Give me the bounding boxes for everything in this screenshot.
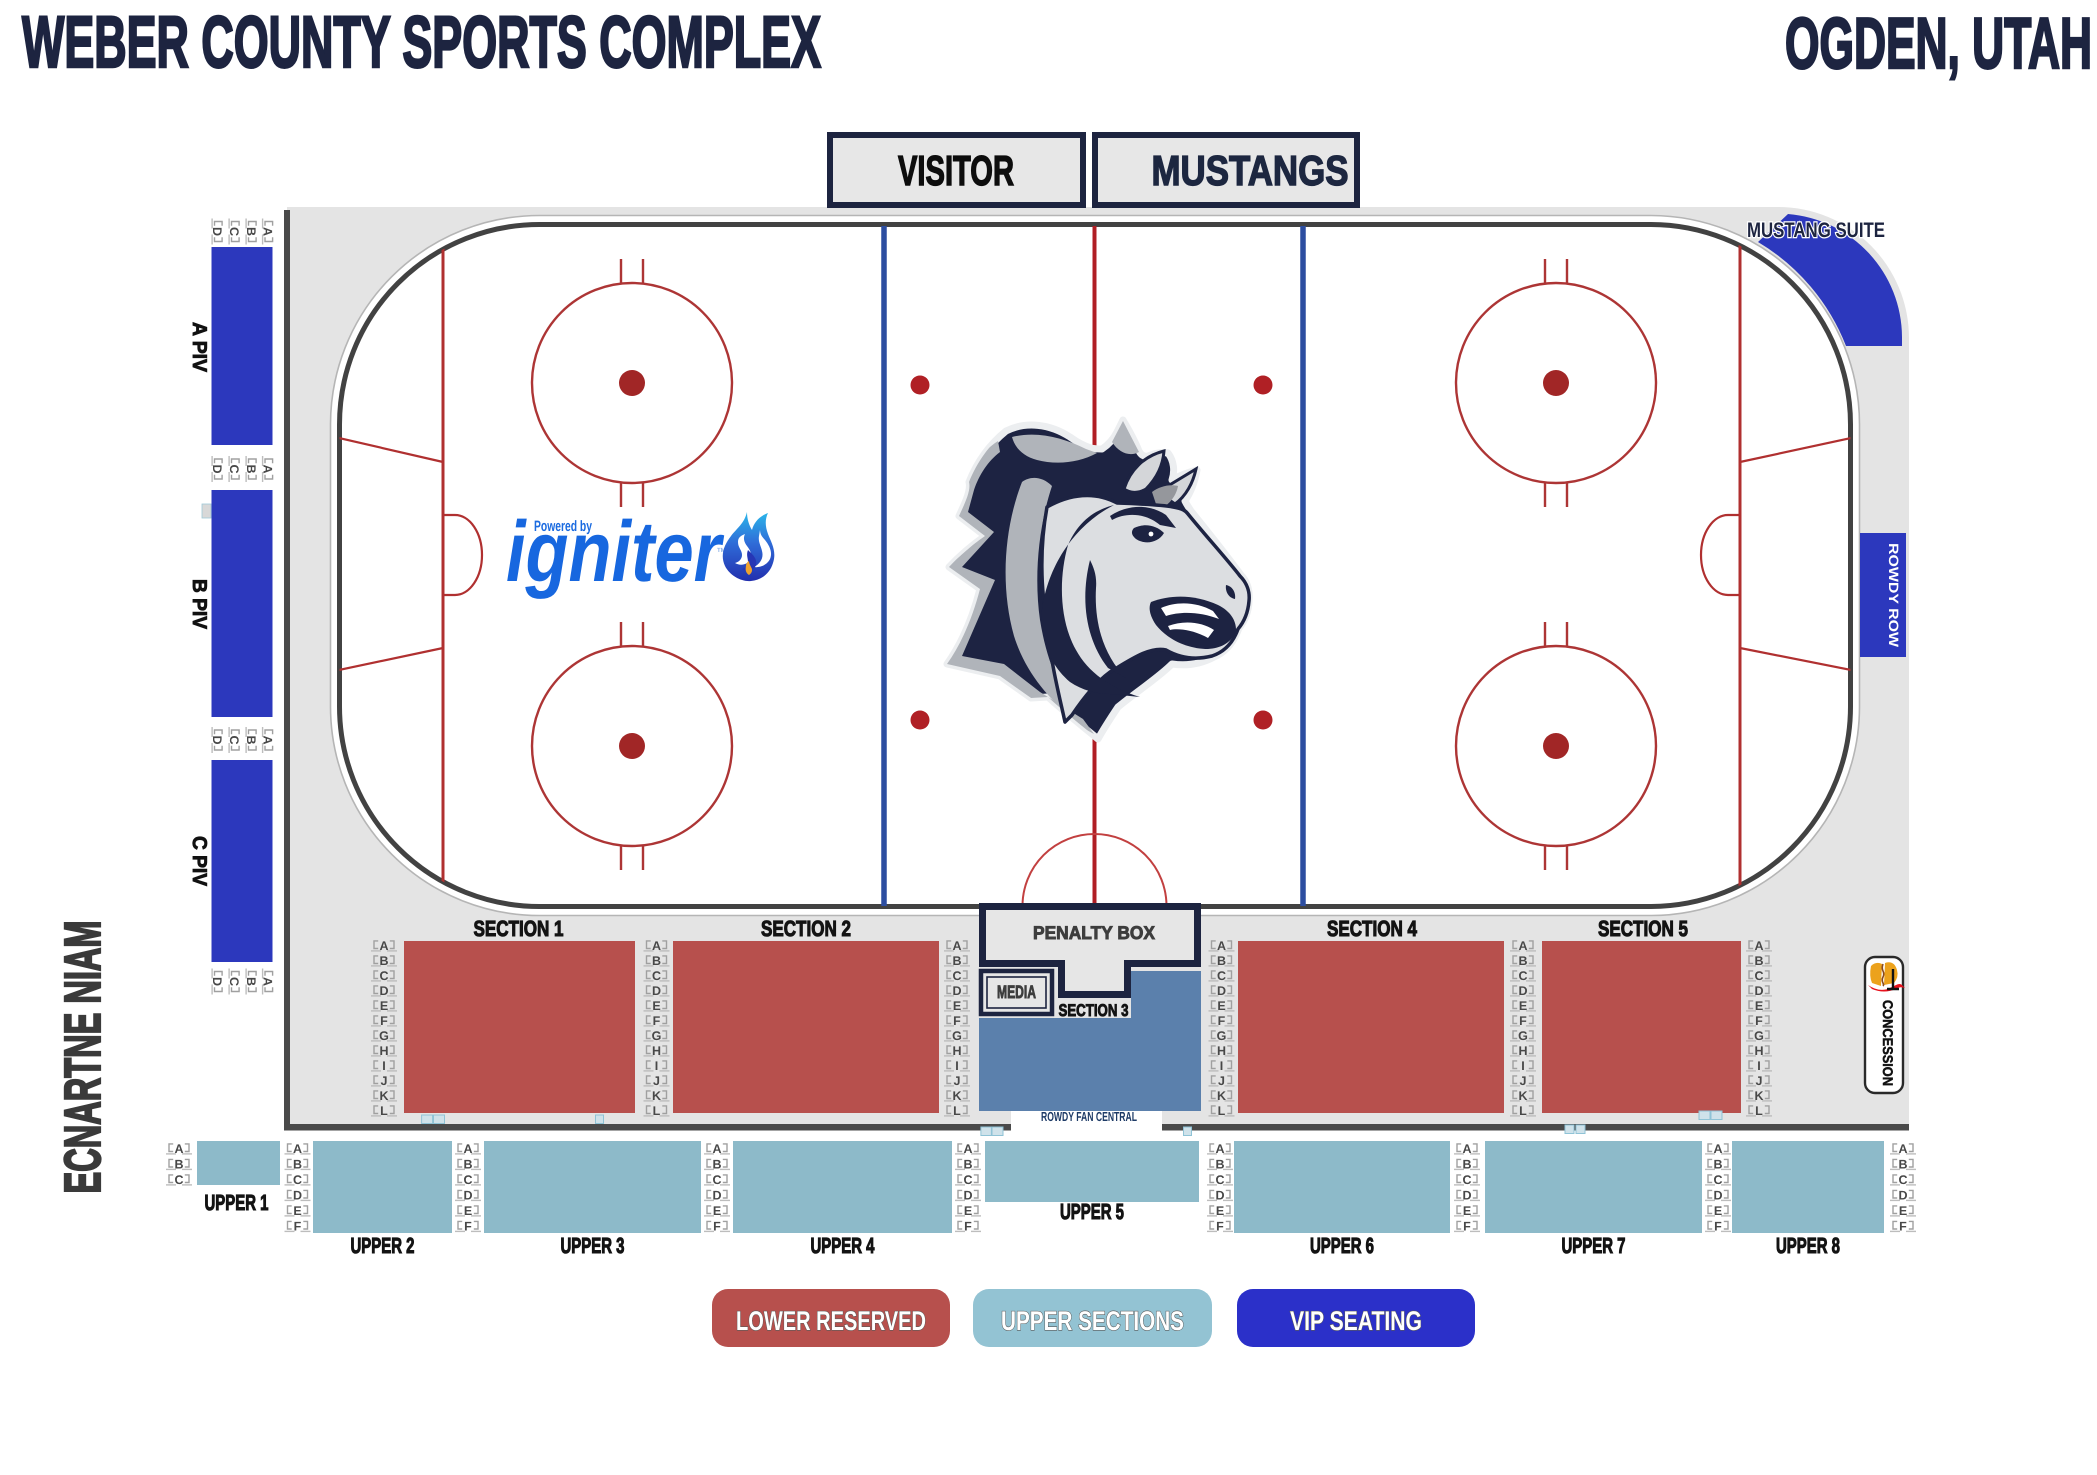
- svg-text:D: D: [210, 464, 224, 473]
- svg-text:J: J: [653, 1074, 660, 1088]
- svg-text:E: E: [380, 999, 388, 1013]
- svg-text:B: B: [1215, 1158, 1224, 1172]
- svg-text:I: I: [382, 1059, 385, 1073]
- svg-text:E: E: [464, 1204, 472, 1218]
- svg-text:C: C: [1217, 969, 1226, 983]
- svg-text:B: B: [1462, 1158, 1471, 1172]
- svg-text:C: C: [379, 969, 388, 983]
- svg-text:K: K: [1754, 1089, 1763, 1103]
- svg-text:D: D: [210, 227, 224, 236]
- svg-text:J: J: [1756, 1074, 1763, 1088]
- svg-text:A: A: [712, 1142, 721, 1156]
- svg-text:UPPER 6: UPPER 6: [1310, 1233, 1374, 1258]
- svg-text:UPPER 5: UPPER 5: [1060, 1199, 1124, 1224]
- svg-text:B: B: [244, 977, 258, 986]
- svg-text:A: A: [1754, 939, 1763, 953]
- svg-text:A: A: [174, 1142, 183, 1156]
- svg-text:VISITOR: VISITOR: [898, 147, 1014, 194]
- svg-text:L: L: [1519, 1104, 1527, 1118]
- svg-text:B: B: [244, 735, 258, 744]
- svg-text:C: C: [227, 735, 241, 744]
- svg-text:UPPER 2: UPPER 2: [351, 1233, 415, 1258]
- svg-text:UPPER 8: UPPER 8: [1776, 1233, 1840, 1258]
- svg-text:SECTION 5: SECTION 5: [1598, 916, 1688, 941]
- svg-text:igniter: igniter: [506, 504, 725, 600]
- svg-text:E: E: [1216, 1204, 1224, 1218]
- svg-text:F: F: [653, 1014, 661, 1028]
- svg-text:J: J: [954, 1074, 961, 1088]
- svg-text:C: C: [227, 464, 241, 473]
- svg-text:LOWER RESERVED: LOWER RESERVED: [736, 1306, 926, 1336]
- svg-text:C: C: [227, 227, 241, 236]
- svg-text:F: F: [953, 1014, 961, 1028]
- svg-text:G: G: [1754, 1029, 1764, 1043]
- svg-text:WEBER COUNTY SPORTS COMPLEX: WEBER COUNTY SPORTS COMPLEX: [22, 2, 821, 83]
- svg-text:A: A: [963, 1142, 972, 1156]
- svg-text:C: C: [1518, 969, 1527, 983]
- svg-text:A: A: [260, 464, 274, 473]
- svg-text:A: A: [1898, 1142, 1907, 1156]
- svg-text:UPPER 4: UPPER 4: [811, 1233, 876, 1258]
- svg-text:D: D: [1215, 1189, 1224, 1203]
- svg-text:A: A: [1518, 939, 1527, 953]
- svg-text:C: C: [952, 969, 961, 983]
- svg-text:F: F: [464, 1220, 472, 1234]
- svg-text:A: A: [260, 735, 274, 744]
- svg-text:B: B: [244, 464, 258, 473]
- svg-text:A: A: [1215, 1142, 1224, 1156]
- svg-text:C: C: [293, 1173, 302, 1187]
- svg-text:L: L: [1755, 1104, 1763, 1118]
- svg-text:E: E: [652, 999, 660, 1013]
- svg-text:VIP SEATING: VIP SEATING: [1290, 1306, 1422, 1336]
- svg-text:ROWDY ROW: ROWDY ROW: [1886, 543, 1901, 647]
- svg-text:L: L: [380, 1104, 388, 1118]
- svg-text:B: B: [1898, 1158, 1907, 1172]
- svg-text:F: F: [1519, 1014, 1527, 1028]
- svg-text:B: B: [1754, 954, 1763, 968]
- svg-text:C: C: [463, 1173, 472, 1187]
- svg-text:D: D: [963, 1189, 972, 1203]
- svg-text:A: A: [1713, 1142, 1722, 1156]
- svg-text:E: E: [1714, 1204, 1722, 1218]
- svg-text:F: F: [713, 1220, 721, 1234]
- svg-text:E: E: [1899, 1204, 1907, 1218]
- svg-text:B: B: [652, 954, 661, 968]
- svg-text:B: B: [963, 1158, 972, 1172]
- svg-text:A: A: [293, 1142, 302, 1156]
- svg-text:G: G: [952, 1029, 962, 1043]
- svg-text:C: C: [963, 1173, 972, 1187]
- svg-text:A: A: [463, 1142, 472, 1156]
- svg-text:D: D: [712, 1189, 721, 1203]
- svg-text:B: B: [1713, 1158, 1722, 1172]
- svg-text:F: F: [1714, 1220, 1722, 1234]
- svg-text:D: D: [1518, 984, 1527, 998]
- svg-text:K: K: [952, 1089, 961, 1103]
- svg-text:B: B: [244, 227, 258, 236]
- svg-text:C: C: [1713, 1173, 1722, 1187]
- svg-text:D: D: [463, 1189, 472, 1203]
- svg-text:D: D: [210, 735, 224, 744]
- svg-text:L: L: [953, 1104, 961, 1118]
- svg-text:E: E: [293, 1204, 301, 1218]
- svg-text:K: K: [1518, 1089, 1527, 1103]
- svg-text:F: F: [964, 1220, 972, 1234]
- svg-text:C: C: [1215, 1173, 1224, 1187]
- svg-text:K: K: [1217, 1089, 1226, 1103]
- svg-text:L: L: [653, 1104, 661, 1118]
- svg-text:ROWDY FAN CENTRAL: ROWDY FAN CENTRAL: [1041, 1109, 1137, 1124]
- svg-text:F: F: [1755, 1014, 1763, 1028]
- svg-text:J: J: [1218, 1074, 1225, 1088]
- svg-text:D: D: [1754, 984, 1763, 998]
- svg-text:PENALTY BOX: PENALTY BOX: [1033, 922, 1156, 943]
- svg-text:B: B: [293, 1158, 302, 1172]
- svg-text:C: C: [712, 1173, 721, 1187]
- svg-text:D: D: [1713, 1189, 1722, 1203]
- svg-text:D: D: [293, 1189, 302, 1203]
- svg-text:A PIV: A PIV: [188, 322, 210, 373]
- svg-text:CONCESSION: CONCESSION: [1880, 1000, 1896, 1086]
- svg-text:H: H: [379, 1044, 388, 1058]
- svg-text:B: B: [1518, 954, 1527, 968]
- svg-text:D: D: [1462, 1189, 1471, 1203]
- svg-text:C PIV: C PIV: [188, 836, 210, 887]
- svg-text:B: B: [174, 1158, 183, 1172]
- svg-text:B: B: [952, 954, 961, 968]
- svg-text:D: D: [210, 977, 224, 986]
- svg-text:K: K: [652, 1089, 661, 1103]
- svg-text:SECTION 3: SECTION 3: [1059, 1001, 1129, 1020]
- svg-text:I: I: [1757, 1059, 1760, 1073]
- svg-text:E: E: [1217, 999, 1225, 1013]
- svg-text:E: E: [1755, 999, 1763, 1013]
- svg-text:A: A: [652, 939, 661, 953]
- svg-text:E: E: [1463, 1204, 1471, 1218]
- svg-text:C: C: [174, 1173, 183, 1187]
- svg-text:F: F: [294, 1220, 302, 1234]
- svg-text:G: G: [1217, 1029, 1227, 1043]
- svg-text:MEDIA: MEDIA: [997, 982, 1036, 1002]
- svg-text:F: F: [380, 1014, 388, 1028]
- svg-text:E: E: [964, 1204, 972, 1218]
- svg-text:A: A: [379, 939, 388, 953]
- svg-text:C: C: [652, 969, 661, 983]
- svg-text:C: C: [1462, 1173, 1471, 1187]
- svg-text:G: G: [1518, 1029, 1528, 1043]
- svg-text:H: H: [1518, 1044, 1527, 1058]
- svg-text:C: C: [1754, 969, 1763, 983]
- svg-text:J: J: [1520, 1074, 1527, 1088]
- svg-text:OGDEN, UTAH: OGDEN, UTAH: [1785, 4, 2092, 84]
- svg-text:D: D: [952, 984, 961, 998]
- svg-text:H: H: [652, 1044, 661, 1058]
- svg-text:F: F: [1899, 1220, 1907, 1234]
- svg-text:UPPER 3: UPPER 3: [561, 1233, 625, 1258]
- svg-text:A: A: [1217, 939, 1226, 953]
- svg-text:A: A: [260, 227, 274, 236]
- svg-text:F: F: [1218, 1014, 1226, 1028]
- svg-text:I: I: [955, 1059, 958, 1073]
- svg-text:ECNARTNE NIAM: ECNARTNE NIAM: [54, 921, 111, 1194]
- svg-text:A: A: [260, 977, 274, 986]
- svg-text:UPPER 7: UPPER 7: [1562, 1233, 1626, 1258]
- svg-text:D: D: [1217, 984, 1226, 998]
- svg-text:F: F: [1216, 1220, 1224, 1234]
- svg-text:C: C: [227, 977, 241, 986]
- svg-text:K: K: [379, 1089, 388, 1103]
- svg-text:SECTION 1: SECTION 1: [474, 916, 564, 941]
- svg-text:SECTION 4: SECTION 4: [1327, 916, 1418, 941]
- svg-text:E: E: [1519, 999, 1527, 1013]
- svg-text:L: L: [1218, 1104, 1226, 1118]
- svg-text:B: B: [463, 1158, 472, 1172]
- svg-text:B: B: [1217, 954, 1226, 968]
- svg-text:I: I: [655, 1059, 658, 1073]
- svg-text:MUSTANG SUITE: MUSTANG SUITE: [1747, 219, 1885, 242]
- svg-text:I: I: [1220, 1059, 1223, 1073]
- svg-text:B PIV: B PIV: [188, 579, 210, 630]
- svg-text:E: E: [953, 999, 961, 1013]
- svg-text:SECTION 2: SECTION 2: [761, 916, 851, 941]
- svg-text:B: B: [379, 954, 388, 968]
- svg-text:UPPER SECTIONS: UPPER SECTIONS: [1001, 1306, 1184, 1336]
- svg-text:D: D: [652, 984, 661, 998]
- svg-text:F: F: [1463, 1220, 1471, 1234]
- svg-text:D: D: [379, 984, 388, 998]
- svg-text:J: J: [381, 1074, 388, 1088]
- svg-text:A: A: [1462, 1142, 1471, 1156]
- svg-text:E: E: [713, 1204, 721, 1218]
- svg-text:H: H: [952, 1044, 961, 1058]
- svg-text:A: A: [952, 939, 961, 953]
- svg-text:B: B: [712, 1158, 721, 1172]
- svg-text:MUSTANGS: MUSTANGS: [1152, 147, 1349, 194]
- svg-text:C: C: [1898, 1173, 1907, 1187]
- svg-text:D: D: [1898, 1189, 1907, 1203]
- svg-text:I: I: [1521, 1059, 1524, 1073]
- svg-text:H: H: [1217, 1044, 1226, 1058]
- svg-text:G: G: [652, 1029, 662, 1043]
- svg-text:G: G: [379, 1029, 389, 1043]
- svg-text:UPPER 1: UPPER 1: [205, 1190, 269, 1215]
- svg-text:H: H: [1754, 1044, 1763, 1058]
